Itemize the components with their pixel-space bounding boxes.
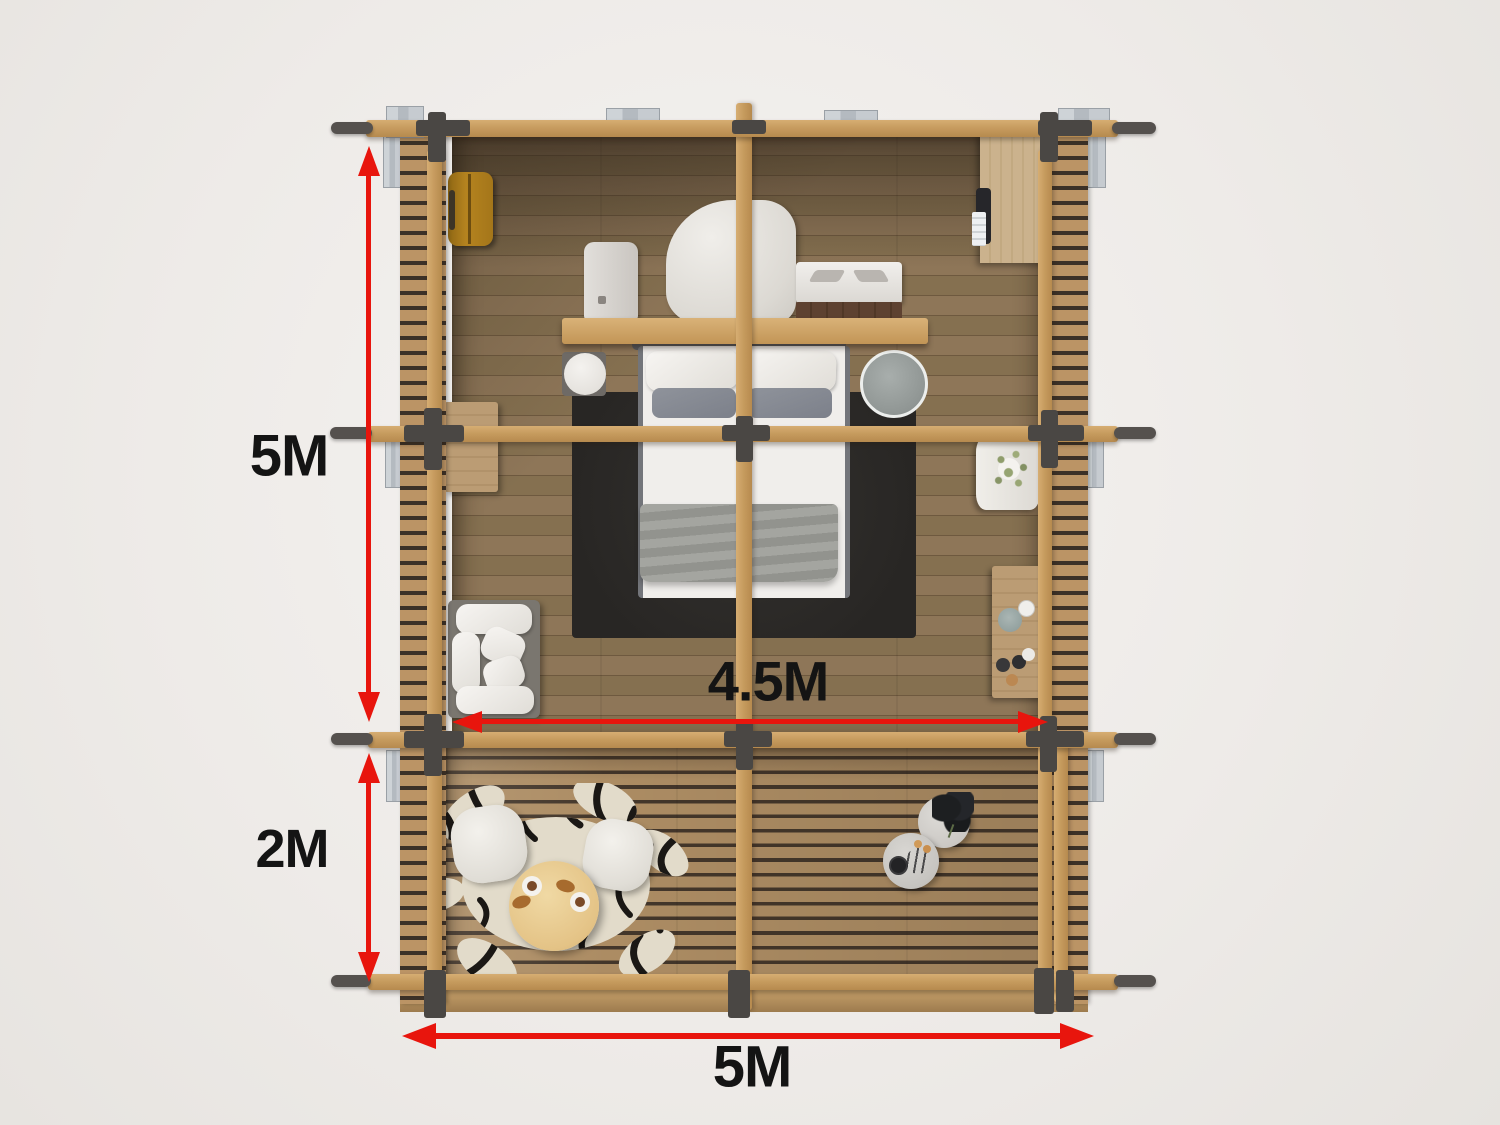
bed-pillow-white-left <box>645 348 738 391</box>
console-kettle <box>1018 600 1035 617</box>
beam-connector <box>732 120 766 134</box>
sofa-cushion-left <box>452 632 480 694</box>
beam-connector <box>416 120 470 136</box>
post-center <box>736 103 752 1010</box>
desk-monitor <box>584 242 638 320</box>
dim-room-depth-line <box>366 172 371 696</box>
beam-post-footing <box>728 970 750 1018</box>
beam-connector <box>1028 425 1084 441</box>
beam-connector <box>1038 120 1092 136</box>
console-cork-jar <box>1006 674 1018 686</box>
dim-room-depth-label: 5M <box>250 423 329 490</box>
beam-separator-cap-left <box>331 733 373 745</box>
dim-deck-depth-arrowhead-down <box>358 952 380 982</box>
beam-connector <box>722 425 770 441</box>
suitcase-handle <box>449 190 455 230</box>
post-left <box>427 150 442 1006</box>
beam-top-cap-right <box>1112 122 1156 134</box>
plant-foliage <box>986 444 1036 496</box>
candle-b <box>923 845 931 853</box>
coffee-cup-a <box>527 881 537 891</box>
dim-total-width-arrowhead-right <box>1060 1023 1094 1049</box>
lounge-sofa <box>448 600 540 718</box>
beam-connector <box>404 731 464 748</box>
beam-post-footing <box>424 970 446 1018</box>
desk-chair <box>666 200 796 324</box>
console-saucer <box>1022 648 1035 661</box>
nightstand-right <box>860 350 928 418</box>
beam-top-cap-left <box>331 122 373 134</box>
metal-bracket-right-1 <box>1086 136 1106 188</box>
dim-total-width-label: 5M <box>713 1034 792 1101</box>
bed-pillow-gray-right <box>748 388 832 418</box>
dim-interior-width-label: 4.5M <box>708 649 829 714</box>
beam-post-footing <box>1034 968 1054 1014</box>
beam-bottom-cap-right <box>1114 975 1156 987</box>
nightstand-left <box>564 353 606 395</box>
post-right-deck <box>1054 740 1068 1002</box>
wardrobe-linens <box>972 212 986 246</box>
dim-interior-width-line <box>478 719 1022 724</box>
sofa-cushion-bottom <box>456 686 534 714</box>
beam-connector <box>1026 731 1084 747</box>
post-right <box>1038 150 1052 1006</box>
side-table-wood <box>444 402 498 492</box>
dim-deck-depth-label: 2M <box>255 818 328 880</box>
beam-connector <box>724 731 772 747</box>
dim-room-depth-arrowhead-down <box>358 692 380 722</box>
metal-bracket-right-3 <box>1086 750 1104 802</box>
beam-connector <box>404 425 464 442</box>
typewriter-keys-right <box>853 270 890 282</box>
beam-separator-cap-right <box>1114 733 1156 745</box>
beam-middle-cap-right <box>1114 427 1156 439</box>
candle-a <box>914 840 922 848</box>
coffee-cup-b <box>575 897 585 907</box>
suitcase-strap <box>468 174 471 244</box>
bed-pillow-white-right <box>743 348 836 391</box>
metal-bracket-right-2 <box>1086 440 1104 488</box>
beam-post-footing <box>1056 970 1074 1012</box>
console-espresso-cup-a <box>996 658 1010 672</box>
bed-pillow-gray-left <box>652 388 736 418</box>
dim-deck-depth-line <box>366 779 371 952</box>
console-table <box>992 566 1044 698</box>
monitor-button <box>598 296 606 304</box>
floor-plan-scene: 5M 2M 4.5M 5M <box>0 0 1500 1125</box>
dim-interior-width-arrowhead-right <box>1018 711 1048 733</box>
typewriter <box>796 262 902 304</box>
